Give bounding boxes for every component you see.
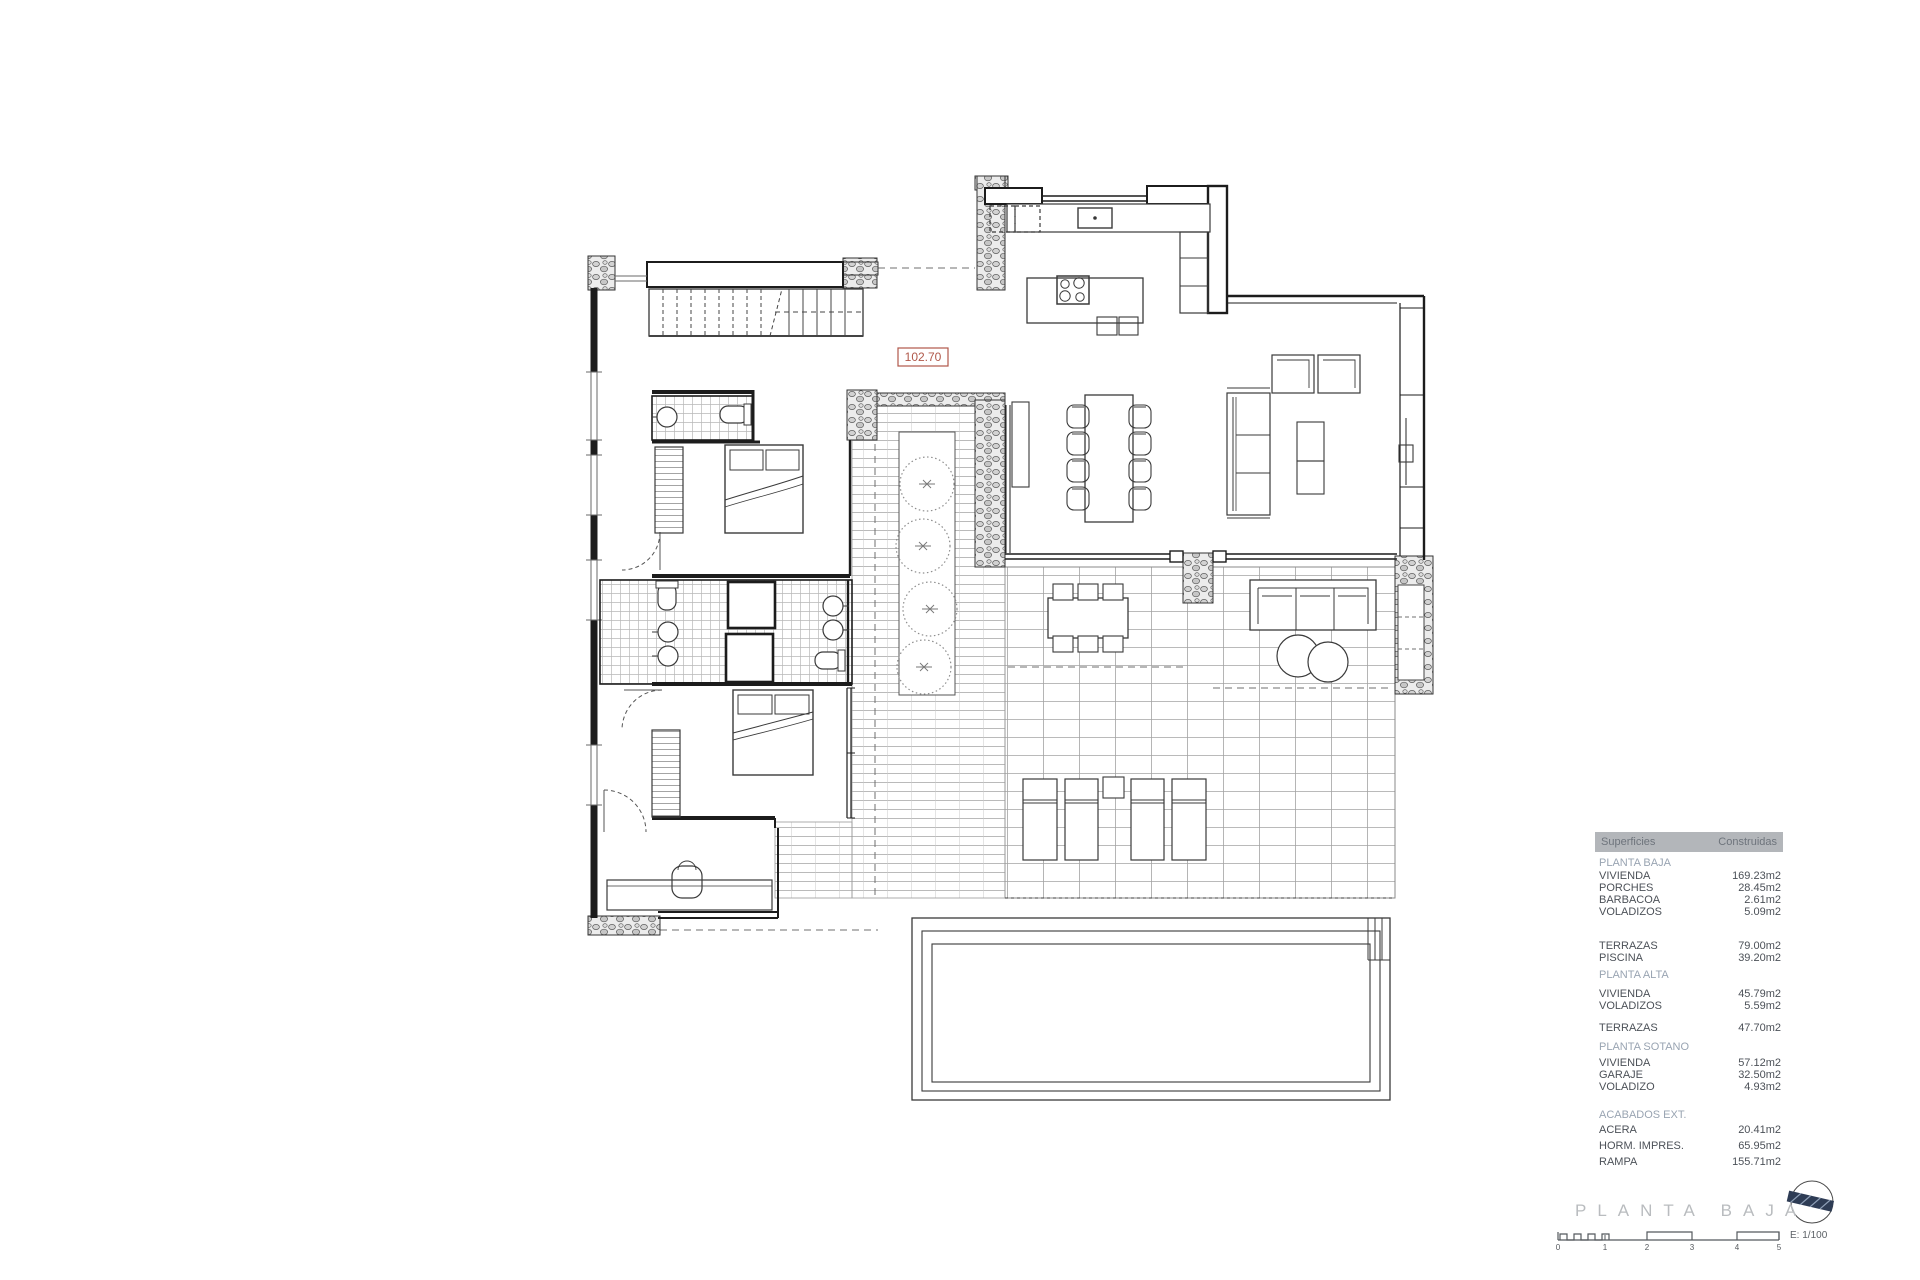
scale-number: 4 bbox=[1732, 1243, 1742, 1252]
table-row: PORCHES28.45m2 bbox=[1599, 883, 1781, 894]
section-title: PLANTA ALTA bbox=[1599, 970, 1781, 981]
scale-ratio-label: E: 1/100 bbox=[1790, 1230, 1827, 1241]
scale-number: 2 bbox=[1642, 1243, 1652, 1252]
dining-chairs bbox=[1067, 405, 1151, 510]
surfaces-table-header: Superficies Construidas bbox=[1595, 832, 1783, 852]
bedroom-2 bbox=[652, 690, 813, 817]
table-row: TERRAZAS79.00m2 bbox=[1599, 941, 1781, 952]
table-row: PISCINA39.20m2 bbox=[1599, 953, 1781, 964]
block-terrazas-alta: TERRAZAS47.70m2 bbox=[1595, 1023, 1783, 1034]
table-row: VOLADIZOS5.59m2 bbox=[1599, 1001, 1781, 1012]
col-superficies: Superficies bbox=[1601, 837, 1655, 848]
sink-icon bbox=[823, 620, 843, 640]
side-table bbox=[1103, 777, 1124, 798]
sink-icon bbox=[657, 407, 677, 427]
block-acabados-ext: ACABADOS EXT. ACERA20.41m2 HORM. IMPRES.… bbox=[1595, 1110, 1783, 1169]
scale-number: 1 bbox=[1600, 1243, 1610, 1252]
table-row: RAMPA155.71m2 bbox=[1599, 1157, 1781, 1168]
table-row: VIVIENDA45.79m2 bbox=[1599, 989, 1781, 1000]
sink-icon bbox=[658, 622, 678, 642]
wardrobe bbox=[652, 730, 680, 817]
outdoor-sofa bbox=[1250, 580, 1376, 630]
courtyard-planter bbox=[896, 432, 957, 695]
table-row: VOLADIZOS5.09m2 bbox=[1599, 907, 1781, 918]
svg-text:102.70: 102.70 bbox=[905, 350, 942, 364]
surfaces-table: Superficies Construidas PLANTA BAJA VIVI… bbox=[1595, 832, 1783, 1169]
table-row: HORM. IMPRES.65.95m2 bbox=[1599, 1141, 1781, 1152]
sink-icon bbox=[823, 596, 843, 616]
kitchen-island bbox=[1027, 276, 1143, 335]
chair bbox=[672, 866, 702, 898]
scale-number: 5 bbox=[1774, 1243, 1784, 1252]
study-area bbox=[607, 861, 772, 910]
block-planta-sotano: PLANTA SOTANO VIVIENDA57.12m2 GARAJE32.5… bbox=[1595, 1042, 1783, 1092]
sideboard bbox=[1012, 402, 1029, 487]
bed bbox=[725, 445, 803, 533]
table-row: TERRAZAS47.70m2 bbox=[1599, 1023, 1781, 1034]
table-row: VIVIENDA169.23m2 bbox=[1599, 871, 1781, 882]
wardrobe bbox=[655, 447, 683, 533]
block-planta-alta: PLANTA ALTA VIVIENDA45.79m2 VOLADIZOS5.5… bbox=[1595, 970, 1783, 1012]
dining-table bbox=[1085, 395, 1133, 522]
section-title: ACABADOS EXT. bbox=[1599, 1110, 1781, 1121]
coffee-tables bbox=[1297, 422, 1324, 494]
block-planta-baja: PLANTA BAJA VIVIENDA169.23m2 PORCHES28.4… bbox=[1595, 858, 1783, 918]
sofa bbox=[1227, 388, 1270, 518]
kitchen bbox=[990, 204, 1210, 335]
level-label: 102.70 bbox=[898, 348, 948, 366]
tv-unit bbox=[1399, 418, 1413, 485]
armchair bbox=[1272, 355, 1360, 393]
table-row: GARAJE32.50m2 bbox=[1599, 1070, 1781, 1081]
pool-steps bbox=[1368, 918, 1390, 960]
scale-bar bbox=[1558, 1232, 1779, 1240]
table-row: VIVIENDA57.12m2 bbox=[1599, 1058, 1781, 1069]
terrace-bench bbox=[1398, 585, 1424, 680]
scale-number: 3 bbox=[1687, 1243, 1697, 1252]
desk bbox=[607, 880, 772, 910]
sink-icon bbox=[658, 646, 678, 666]
staircase bbox=[649, 289, 863, 336]
outdoor-dining bbox=[1048, 584, 1128, 652]
table-row: BARBACOA2.61m2 bbox=[1599, 895, 1781, 906]
block-terrazas-piscina: TERRAZAS79.00m2 PISCINA39.20m2 bbox=[1595, 941, 1783, 964]
col-construidas: Construidas bbox=[1718, 837, 1777, 848]
sheet-title: PLANTA BAJA bbox=[1575, 1201, 1790, 1221]
scale-number: 0 bbox=[1553, 1243, 1563, 1252]
table-row: ACERA20.41m2 bbox=[1599, 1125, 1781, 1136]
toilet-icon bbox=[815, 652, 841, 669]
bedroom-1 bbox=[655, 445, 803, 533]
bed bbox=[733, 690, 813, 775]
pool bbox=[912, 898, 1395, 1100]
section-title: PLANTA SOTANO bbox=[1599, 1042, 1781, 1053]
floor-plan-sheet: 102.70 Superficies Construidas PLANTA BA… bbox=[0, 0, 1920, 1280]
section-title: PLANTA BAJA bbox=[1599, 858, 1781, 869]
table-row: VOLADIZO4.93m2 bbox=[1599, 1082, 1781, 1093]
living-dining bbox=[1012, 355, 1413, 522]
